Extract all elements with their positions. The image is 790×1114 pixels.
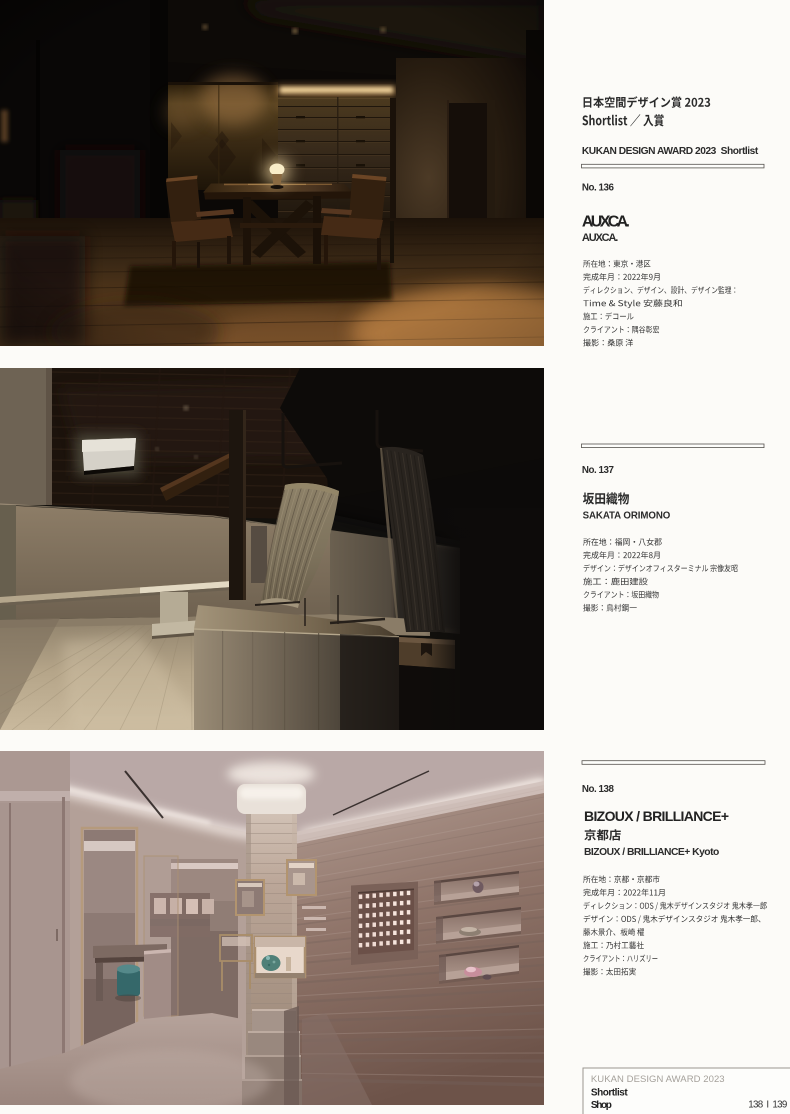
svg-text:KUKAN DESIGN AWARD 2023 Short: KUKAN DESIGN AWARD 2023 Shortlist [582,146,759,157]
svg-text:No. 136: No. 136 [582,183,615,194]
svg-text:Shop: Shop [591,1100,612,1111]
svg-text:BIZOUX / BRILLIANCE+ Kyoto: BIZOUX / BRILLIANCE+ Kyoto [584,847,719,858]
svg-text:138 I 139: 138 I 139 [748,1100,787,1111]
svg-text:AUXCA.: AUXCA. [582,214,630,231]
svg-text:SAKATA ORIMONO: SAKATA ORIMONO [583,511,671,522]
svg-text:No. 138: No. 138 [582,784,615,795]
svg-text:No. 137: No. 137 [582,465,615,476]
svg-text:Shortlist: Shortlist [591,1087,628,1098]
svg-text:AUXCA.: AUXCA. [582,232,618,244]
svg-text:BIZOUX / BRILLIANCE+: BIZOUX / BRILLIANCE+ [584,808,729,824]
svg-text:KUKAN DESIGN AWARD 2023: KUKAN DESIGN AWARD 2023 [591,1074,725,1085]
